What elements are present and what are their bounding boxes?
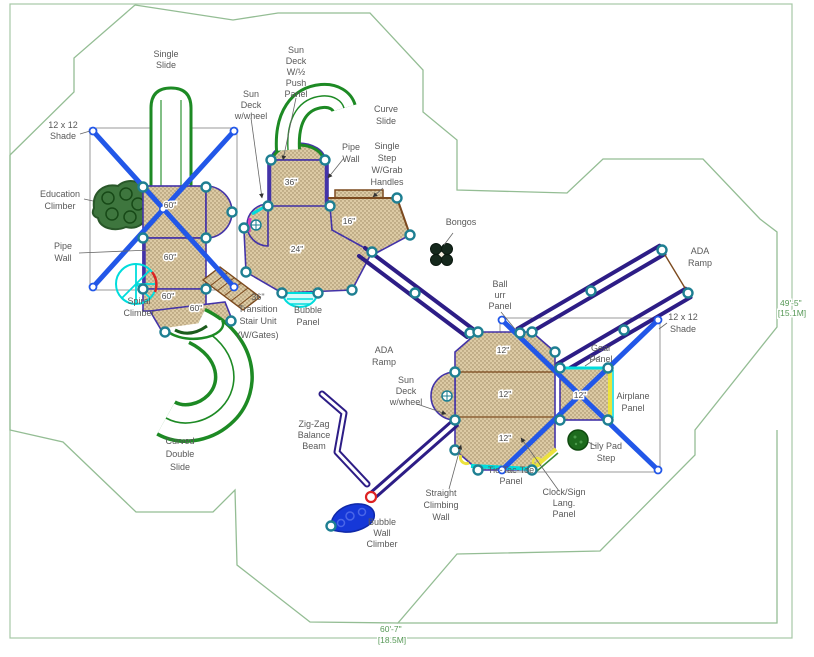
- label-pipe-wall-left: PipeWall: [54, 241, 72, 263]
- label-sun-deck-wheel-bottom: SunDeckw/wheel: [389, 375, 423, 407]
- label-sun-deck-push-panel: SunDeckW/½PushPanel: [284, 45, 307, 99]
- deck-height-label: 12": [574, 390, 586, 400]
- wheel-icon-bottom: [442, 391, 452, 401]
- label-ada-ramp-center: ADARamp: [372, 345, 396, 367]
- deck-height-label: 24": [291, 244, 303, 254]
- deck-height-label: 16": [343, 216, 355, 226]
- deck-height-label: 12": [497, 345, 509, 355]
- label-airplane-panel: AirplanePanel: [616, 391, 649, 413]
- label-clock-sign-lang-panel: Clock/SignLang.Panel: [542, 487, 585, 519]
- deck-height-label: 60": [190, 303, 202, 313]
- label-pipe-wall-right: PipeWall: [342, 142, 360, 164]
- label-ada-ramp-right: ADARamp: [688, 246, 712, 268]
- label-sun-deck-wheel-top: SunDeckw/wheel: [234, 89, 268, 121]
- label-shade-right: 12 x 12Shade: [668, 312, 698, 334]
- label-curved-double-slide: CurvedDoubleSlide: [165, 436, 194, 472]
- deck-height-label: 60": [162, 291, 174, 301]
- label-lily-pad-step: Lily PadStep: [590, 441, 622, 463]
- label-tic-tac-toe-panel: Tic-Tac-ToePanel: [488, 465, 534, 486]
- deck-height-label: 12": [499, 433, 511, 443]
- label-single-slide: SingleSlide: [153, 49, 178, 70]
- deck-height-label: 60": [164, 252, 176, 262]
- dimension-right: 49'-5" [15.1M]: [778, 298, 806, 318]
- label-curve-slide: CurveSlide: [374, 104, 398, 126]
- straight-climbing-wall-shape: [370, 420, 458, 498]
- playground-plan-page: SingleSlide12 x 12ShadeSunDeckw/wheelSun…: [0, 0, 814, 657]
- label-single-step-grab-handles: SingleStepW/GrabHandles: [370, 141, 404, 187]
- label-transition-stair-gates: (W/Gates): [237, 330, 278, 340]
- deck-36: [268, 160, 328, 208]
- label-straight-climbing-wall: StraightClimbingWall: [423, 488, 458, 522]
- label-shade-left: 12 x 12Shade: [48, 120, 78, 141]
- label-ball-urr-panel: BallurrPanel: [488, 279, 511, 311]
- bongos-icon: [431, 244, 453, 266]
- label-bubble-panel: BubblePanel: [294, 305, 322, 327]
- wheel-icon-top: [251, 220, 261, 230]
- playground-plan-drawing: SingleSlide12 x 12ShadeSunDeckw/wheelSun…: [0, 0, 814, 657]
- label-education-climber: EducationClimber: [40, 189, 80, 211]
- label-bongos: Bongos: [446, 217, 477, 227]
- label-zig-zag-balance-beam: Zig-ZagBalanceBeam: [298, 419, 331, 451]
- deck-height-label: 36": [285, 177, 297, 187]
- lily-pad-step-icon: [568, 430, 588, 450]
- deck-height-label: 12": [499, 389, 511, 399]
- red-connector-node: [366, 492, 376, 502]
- curved-double-slide-shape: [165, 320, 234, 423]
- label-gear-panel: GearPanel: [589, 343, 612, 364]
- dimension-bottom: 60'-7" [18.5M]: [378, 624, 406, 645]
- deck-height-label: 60": [164, 200, 176, 210]
- label-bubble-wall-climber: BubbleWallClimber: [366, 517, 397, 549]
- left-deck-cluster: [143, 186, 233, 333]
